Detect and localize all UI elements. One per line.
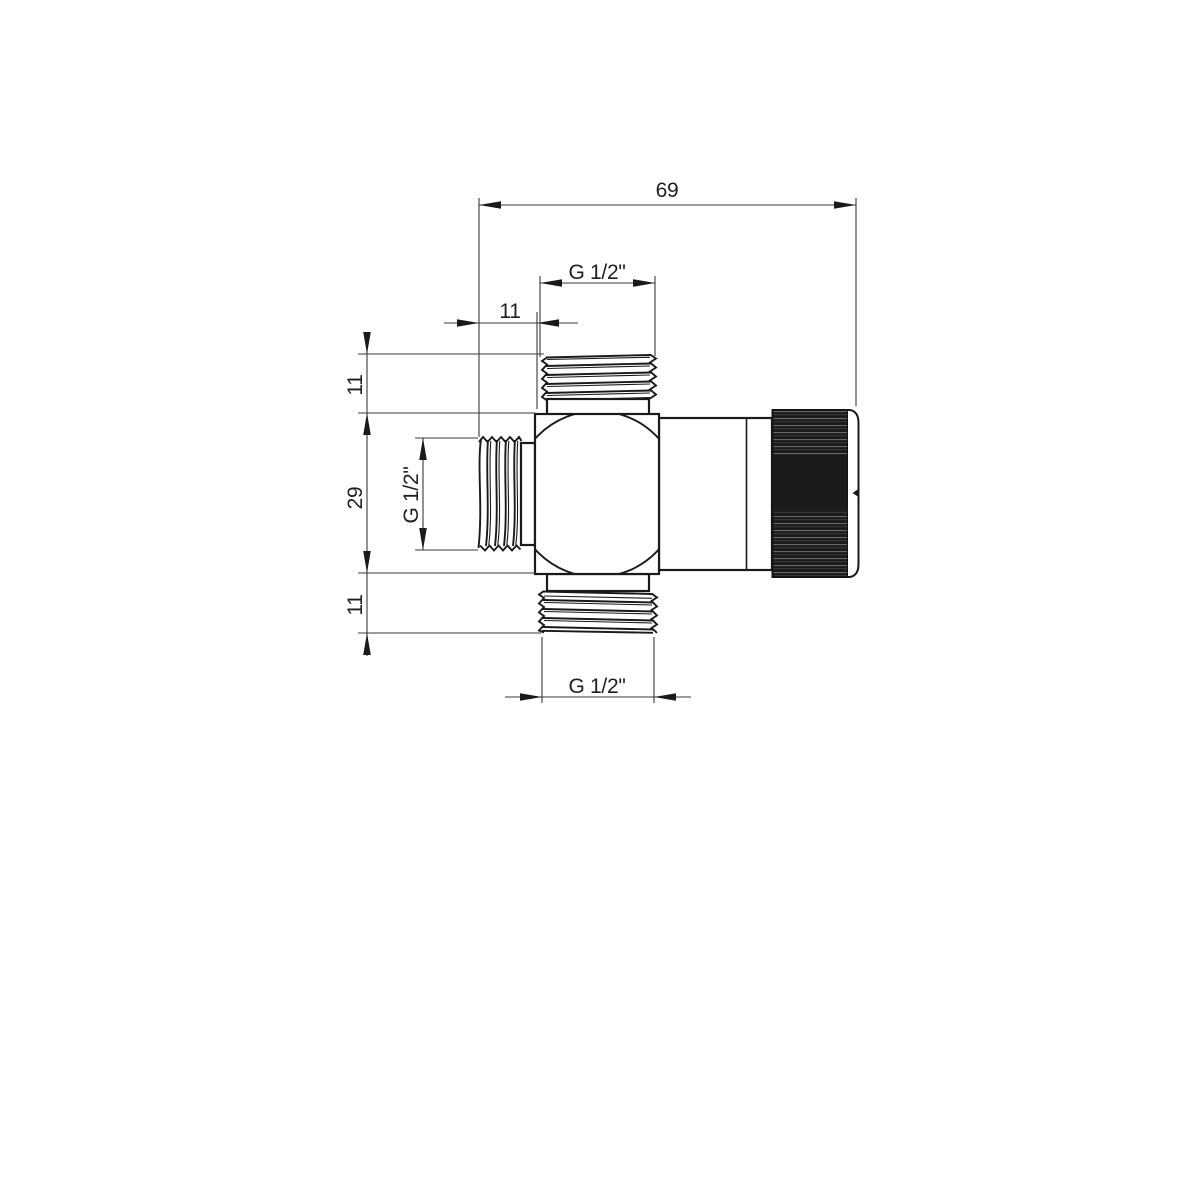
top-thread-collar xyxy=(547,399,649,415)
dimension-thread-top: G 1/2" xyxy=(540,261,655,357)
dimension-overall-length: 69 xyxy=(479,179,856,437)
technical-drawing: 69 11 G 1/2" 11 29 11 xyxy=(0,0,1200,1200)
left-thread-collar xyxy=(521,443,535,545)
dim-label-69: 69 xyxy=(656,179,679,202)
bottom-thread xyxy=(539,591,657,633)
right-cylinder xyxy=(659,418,772,570)
dim-label-g12-top: G 1/2" xyxy=(568,261,625,284)
knob-dark-band xyxy=(774,456,848,510)
dim-label-11-upper: 11 xyxy=(344,374,367,395)
dim-label-11-top: 11 xyxy=(499,300,520,323)
dimension-thread-left: G 1/2" xyxy=(400,438,478,550)
dim-label-11-lower: 11 xyxy=(344,594,367,615)
dim-label-g12-left: G 1/2" xyxy=(400,466,423,523)
dim-label-29: 29 xyxy=(344,487,367,510)
dim-label-g12-bottom: G 1/2" xyxy=(568,675,625,698)
left-thread xyxy=(479,437,522,551)
knurled-knob xyxy=(773,410,859,577)
top-thread xyxy=(542,355,656,401)
dimension-thread-bottom: G 1/2" xyxy=(505,637,691,703)
valve-body xyxy=(514,411,680,577)
drawing-canvas: 69 11 G 1/2" 11 29 11 xyxy=(0,0,1200,1200)
bottom-thread-collar xyxy=(547,574,649,591)
